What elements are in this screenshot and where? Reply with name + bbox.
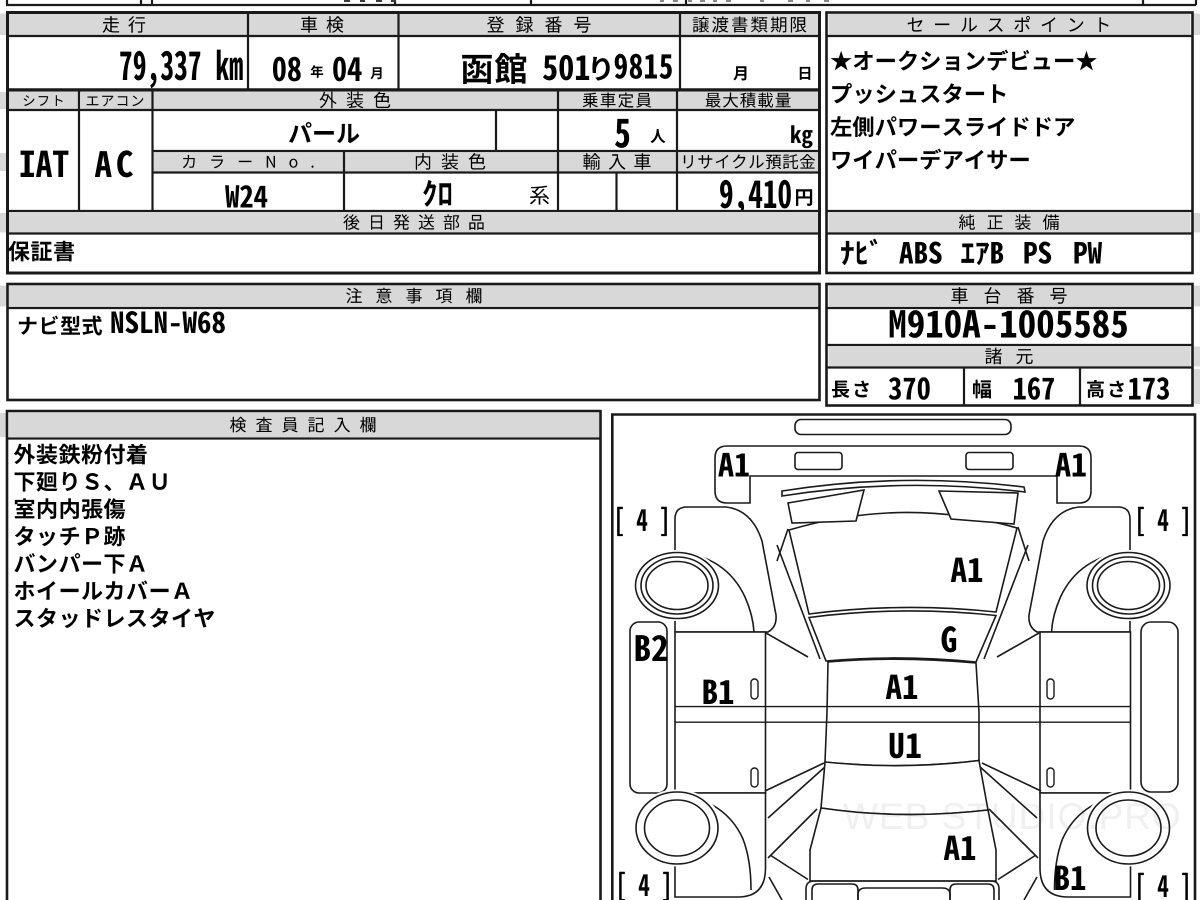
svg-text:WEB STUDIO.PRO: WEB STUDIO.PRO xyxy=(843,796,1182,837)
